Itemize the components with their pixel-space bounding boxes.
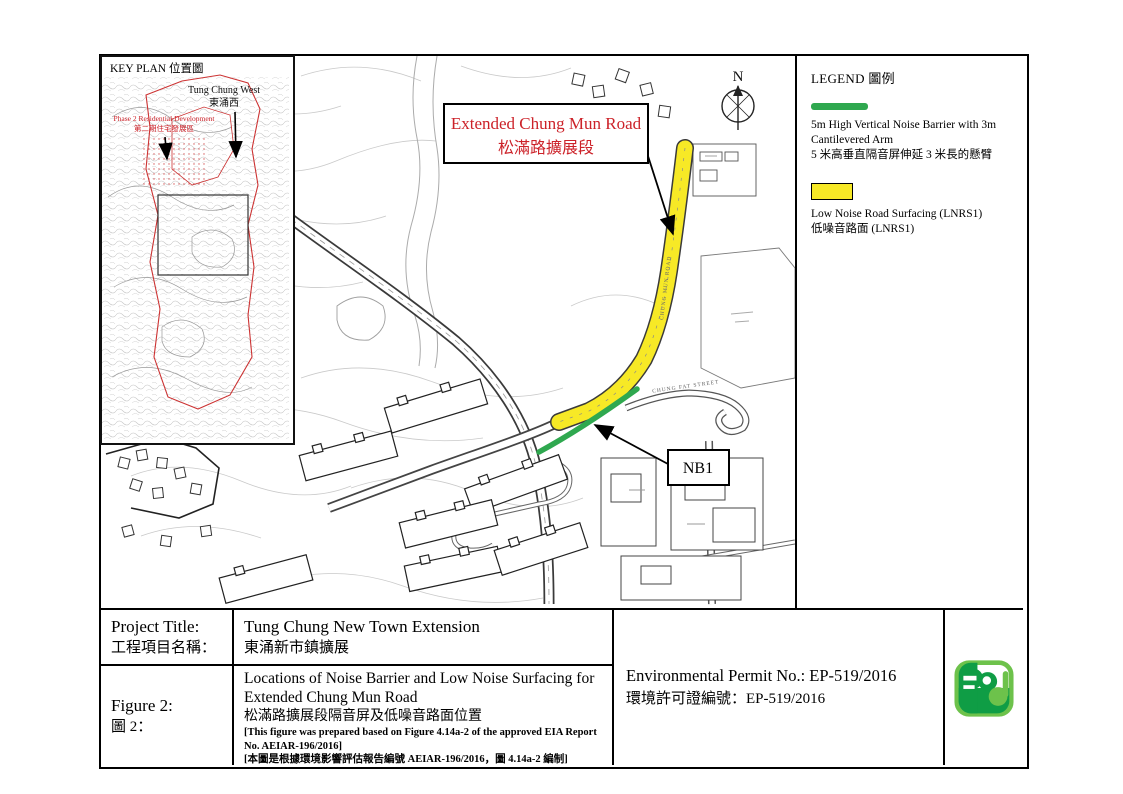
- figure-title-zh: 松滿路擴展段隔音屏及低噪音路面位置: [244, 707, 606, 726]
- north-label: N: [733, 69, 744, 85]
- legend-title: LEGEND 圖例: [811, 68, 1023, 87]
- legend-item-barrier-line2: Cantilevered Arm: [811, 133, 1023, 148]
- tung-chung-west-label-en: Tung Chung West: [188, 85, 260, 96]
- figure-note-en: [This figure was prepared based on Figur…: [244, 726, 606, 753]
- figure-label-cell: Figure 2: 圖 2：: [101, 664, 234, 765]
- environmental-permit-cell: Environmental Permit No.: EP-519/2016 環境…: [614, 610, 945, 765]
- epd-logo-cell: [945, 610, 1023, 765]
- road-label-box: Extended Chung Mun Road 松滿路擴展段: [444, 104, 673, 234]
- legend-item-lnrs-line1: Low Noise Road Surfacing (LNRS1): [811, 207, 1023, 222]
- project-title-value-cell: Tung Chung New Town Extension 東涌新市鎮擴展: [234, 610, 614, 664]
- phase2-label-zh: 第二期住宅發展區: [134, 123, 194, 133]
- project-title-value-en: Tung Chung New Town Extension: [244, 615, 612, 638]
- figure-note-zh: [本圖是根據環境影響評估報告編號 AEIAR-196/2016，圖 4.14a-…: [244, 753, 606, 767]
- phase2-hatched-area: [140, 137, 206, 185]
- north-arrow: N: [722, 69, 754, 130]
- figure-label-en: Figure 2:: [111, 694, 232, 717]
- tung-chung-west-arrow: [235, 112, 236, 157]
- road-label-en: Extended Chung Mun Road: [451, 114, 642, 133]
- drawing-sheet: CHUNG MUN ROAD CHUNG FAT STREET N Extend…: [99, 54, 1029, 769]
- permit-number-zh: 環境許可證編號：EP-519/2016: [626, 688, 943, 711]
- project-title-label-cell: Project Title: 工程項目名稱：: [101, 610, 234, 664]
- epd-logo-icon: [954, 658, 1014, 718]
- project-title-value-zh: 東涌新市鎮擴展: [244, 638, 612, 659]
- legend-item-barrier-line1: 5m High Vertical Noise Barrier with 3m: [811, 118, 1023, 133]
- project-title-label-en: Project Title:: [111, 615, 232, 638]
- figure-page: CHUNG MUN ROAD CHUNG FAT STREET N Extend…: [0, 0, 1123, 794]
- legend-panel: LEGEND 圖例 5m High Vertical Noise Barrier…: [797, 56, 1023, 608]
- road-label-zh: 松滿路擴展段: [498, 139, 594, 157]
- legend-item-barrier-line3: 5 米高垂直隔音屏伸延 3 米長的懸臂: [811, 148, 1023, 163]
- nb1-label: NB1: [683, 460, 713, 477]
- legend-item-lnrs-line2: 低噪音路面 (LNRS1): [811, 222, 1023, 237]
- permit-number-en: Environmental Permit No.: EP-519/2016: [626, 664, 943, 688]
- project-title-label-zh: 工程項目名稱：: [111, 638, 232, 659]
- legend-swatch-noise-barrier: [811, 103, 868, 110]
- title-block: Project Title: 工程項目名稱： Tung Chung New To…: [101, 608, 1023, 765]
- figure-title-cell: Locations of Noise Barrier and Low Noise…: [234, 664, 614, 765]
- phase2-label-en: Phase 2 Residential Development: [113, 114, 215, 123]
- chung-fat-street-road: [626, 393, 746, 432]
- village-cluster: [106, 438, 219, 547]
- tung-chung-west-label-zh: 東涌西: [209, 96, 239, 109]
- key-plan-drawing: KEY PLAN 位置圖 Tung Chung West 東涌西 Phase 2…: [102, 57, 289, 439]
- figure-label-zh: 圖 2：: [111, 717, 232, 738]
- utility-compound: [693, 144, 756, 196]
- car-park-area: [701, 248, 795, 388]
- figure-title-en: Locations of Noise Barrier and Low Noise…: [244, 669, 606, 707]
- key-plan: KEY PLAN 位置圖 Tung Chung West 東涌西 Phase 2…: [100, 55, 295, 445]
- main-map: CHUNG MUN ROAD CHUNG FAT STREET N Extend…: [101, 56, 797, 608]
- key-plan-title: KEY PLAN 位置圖: [110, 61, 204, 75]
- legend-swatch-low-noise-surfacing: [811, 183, 853, 200]
